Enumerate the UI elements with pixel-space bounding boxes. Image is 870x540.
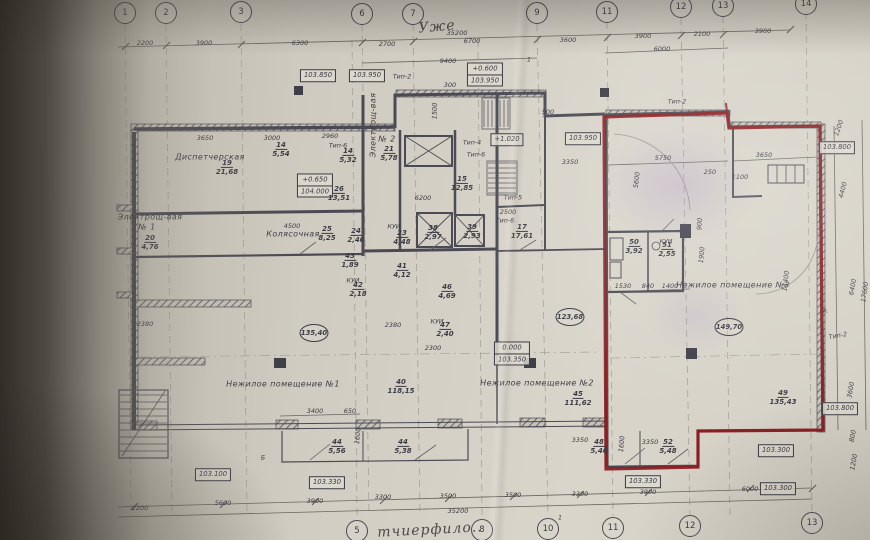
- type-label: Тип-6: [329, 143, 347, 150]
- handwritten-note: тчиерфило..: [377, 519, 483, 540]
- annotation-label: КУИ: [430, 319, 443, 326]
- dimension-label: 3900: [635, 33, 652, 40]
- grid-bubble-top: 1: [114, 2, 136, 24]
- room-number-area: 49135,43: [769, 389, 796, 407]
- dimension-label: 3650: [197, 135, 214, 142]
- room-number-area: 382,97: [424, 224, 441, 242]
- area-circle: 149,70: [715, 318, 744, 336]
- dimension-label: 3500: [505, 492, 522, 499]
- elevation-box: 103.800: [819, 142, 855, 154]
- type-label: Тип-2: [668, 99, 686, 106]
- dimension-label: 2500: [500, 209, 517, 216]
- room-number-area: 145,54: [272, 141, 289, 159]
- dimension-label: 6000: [742, 486, 759, 493]
- annotation-label: к.: [823, 308, 829, 315]
- elevation-box: 103.330: [625, 476, 661, 488]
- type-label: Тип-2: [828, 331, 847, 341]
- room-number-area: 445,38: [394, 438, 411, 456]
- dimension-label: 1200: [833, 119, 845, 137]
- grid-bubble-bottom: 13: [801, 512, 823, 534]
- elevation-box: 103.330: [309, 477, 345, 489]
- elevation-box: 103.100: [195, 469, 231, 481]
- room-name: Диспетчерская: [175, 153, 245, 162]
- dimension-label: 3900: [196, 40, 213, 47]
- grid-bubble-bottom: 11: [602, 517, 624, 539]
- elevation-box: 103.950: [349, 70, 385, 82]
- dimension-label: 1600: [354, 427, 362, 444]
- room-name: Нежилое помещение №2: [480, 379, 594, 388]
- room-number-area: 40118,15: [387, 378, 414, 396]
- room-number-area: 215,78: [380, 145, 397, 163]
- dimension-label: 840: [642, 283, 654, 290]
- room-name: Нежилое помещение №1: [226, 380, 340, 389]
- room-name: Электрощ-вая: [118, 213, 183, 222]
- floorplan-photo: 1236791112131458101112132200390063002700…: [0, 0, 870, 540]
- room-number-area: 2613,51: [328, 185, 350, 203]
- grid-bubble-top: 13: [712, 0, 734, 17]
- elevation-box: 103.800: [822, 403, 858, 415]
- dimension-label: 6200: [415, 195, 432, 202]
- dimension-label: 2300: [425, 345, 442, 352]
- dimension-label: 1200: [849, 453, 858, 470]
- annotation-label: КУИ: [659, 239, 672, 246]
- grid-bubble-top: 2: [155, 2, 177, 24]
- room-number-area: 1512,85: [451, 175, 473, 193]
- dimension-label: 2380: [385, 322, 402, 329]
- handwritten-note: Уже: [418, 17, 457, 36]
- elevation-box: +0.600103.950: [467, 63, 503, 86]
- dimension-label: 35200: [448, 508, 469, 515]
- dimension-label: 2200: [137, 40, 154, 47]
- room-number-area: 392,93: [463, 223, 480, 241]
- dimension-label: 500: [542, 109, 554, 116]
- dimension-label: 5600: [633, 171, 641, 188]
- dimension-label: 3600: [846, 381, 855, 398]
- dimension-label: 3900: [307, 498, 324, 505]
- room-number-area: 431,89: [341, 252, 358, 270]
- dimension-label: 3900: [755, 28, 772, 35]
- dimension-label: 1600: [618, 435, 626, 452]
- dimension-label: 300: [444, 82, 456, 89]
- type-label: Тип-4: [463, 140, 481, 147]
- dimension-label: 250: [704, 169, 716, 176]
- elevation-box: 0.000103.350: [494, 342, 530, 365]
- dimension-label: 1500: [431, 103, 438, 120]
- grid-bubble-bottom: 10: [537, 518, 559, 540]
- grid-bubble-bottom: 12: [679, 515, 701, 537]
- room-number-area: 242,40: [347, 227, 364, 245]
- area-circle: 135,40: [300, 324, 329, 342]
- room-number-area: 414,12: [393, 262, 410, 280]
- annotation-label: 1: [527, 57, 531, 64]
- room-name: Нежилое помещение №3: [676, 281, 790, 290]
- grid-bubble-top: 12: [670, 0, 692, 18]
- elevation-box: 103.300: [760, 483, 796, 495]
- dimension-label: 3400: [307, 408, 324, 415]
- dimension-label: 2100: [694, 31, 711, 38]
- dimension-label: 3300: [572, 491, 589, 498]
- dimension-label: 3350: [562, 159, 579, 166]
- type-label: Тип-6: [467, 152, 485, 159]
- dimension-label: 9400: [440, 58, 457, 65]
- dimension-label: 900: [696, 218, 704, 231]
- room-number-area: 45111,62: [564, 390, 591, 408]
- room-number-area: 445,56: [328, 438, 345, 456]
- room-number-area: 1717,61: [511, 223, 533, 241]
- room-number-area: 464,69: [438, 283, 455, 301]
- type-label: Тип-2: [393, 74, 411, 81]
- dimension-label: 800: [849, 429, 858, 442]
- dimension-label: 17600: [860, 281, 869, 302]
- dimension-label: 3500: [440, 493, 457, 500]
- dimension-label: 3600: [560, 37, 577, 44]
- room-number-area: 503,92: [625, 238, 642, 256]
- dimension-label: 5600: [215, 500, 232, 507]
- room-number-area: 204,76: [141, 234, 158, 252]
- dimension-label: 1900: [698, 246, 706, 263]
- room-number-area: 258,25: [318, 225, 335, 243]
- dimension-label: 3900: [640, 489, 657, 496]
- grid-bubble-top: 9: [526, 2, 548, 24]
- grid-bubble-top: 11: [596, 1, 618, 23]
- dimension-label: 6700: [464, 38, 481, 45]
- dimension-label: 2380: [137, 321, 154, 328]
- room-number-area: 525,48: [659, 438, 676, 456]
- room-number-area: 234,48: [393, 229, 410, 247]
- dimension-label: 4400: [838, 181, 848, 199]
- dimension-label: 1100: [732, 174, 749, 181]
- grid-bubble-top: 3: [230, 1, 252, 23]
- dimension-label: 2200: [132, 505, 149, 512]
- dimension-label: 2960: [322, 133, 339, 140]
- room-number-area: 1921,68: [216, 159, 238, 177]
- dimension-label: 6400: [848, 278, 857, 295]
- room-name: № 1: [138, 223, 155, 232]
- type-label: Тип-6: [496, 218, 514, 225]
- elevation-box: 103.950: [565, 133, 601, 145]
- elevation-box: 103.300: [758, 445, 794, 457]
- plan-labels-layer: 1236791112131458101112132200390063002700…: [0, 0, 870, 540]
- dimension-label: 3650: [756, 152, 773, 159]
- dimension-label: 4500: [284, 223, 301, 230]
- type-label: Тип-5: [504, 195, 522, 202]
- grid-bubble-top: 6: [351, 3, 373, 25]
- area-circle: 123,68: [556, 308, 585, 326]
- annotation-label: КУИ: [387, 224, 400, 231]
- room-name: № 2: [378, 135, 395, 144]
- annotation-label: Б: [261, 455, 265, 462]
- elevation-box: +1.020: [490, 134, 523, 146]
- dimension-label: 5750: [655, 155, 672, 162]
- grid-bubble-bottom: 5: [346, 520, 368, 540]
- dimension-label: 650: [344, 408, 356, 415]
- dimension-label: 3350: [642, 439, 659, 446]
- dimension-label: 2700: [379, 41, 396, 48]
- dimension-label: 1530: [615, 283, 632, 290]
- dimension-label: 3350: [572, 437, 589, 444]
- room-name: Электрощ-вая: [369, 93, 378, 158]
- room-number-area: 485,46: [590, 438, 607, 456]
- room-number-area: 145,32: [339, 147, 356, 165]
- dimension-label: 6300: [292, 40, 309, 47]
- annotation-label: 1: [558, 515, 562, 522]
- grid-bubble-top: 14: [795, 0, 817, 15]
- elevation-box: 103.850: [300, 70, 336, 82]
- dimension-label: 3300: [375, 494, 392, 501]
- room-name: Колясочная: [266, 230, 319, 239]
- dimension-label: 6000: [654, 46, 671, 53]
- annotation-label: КУИ: [346, 278, 359, 285]
